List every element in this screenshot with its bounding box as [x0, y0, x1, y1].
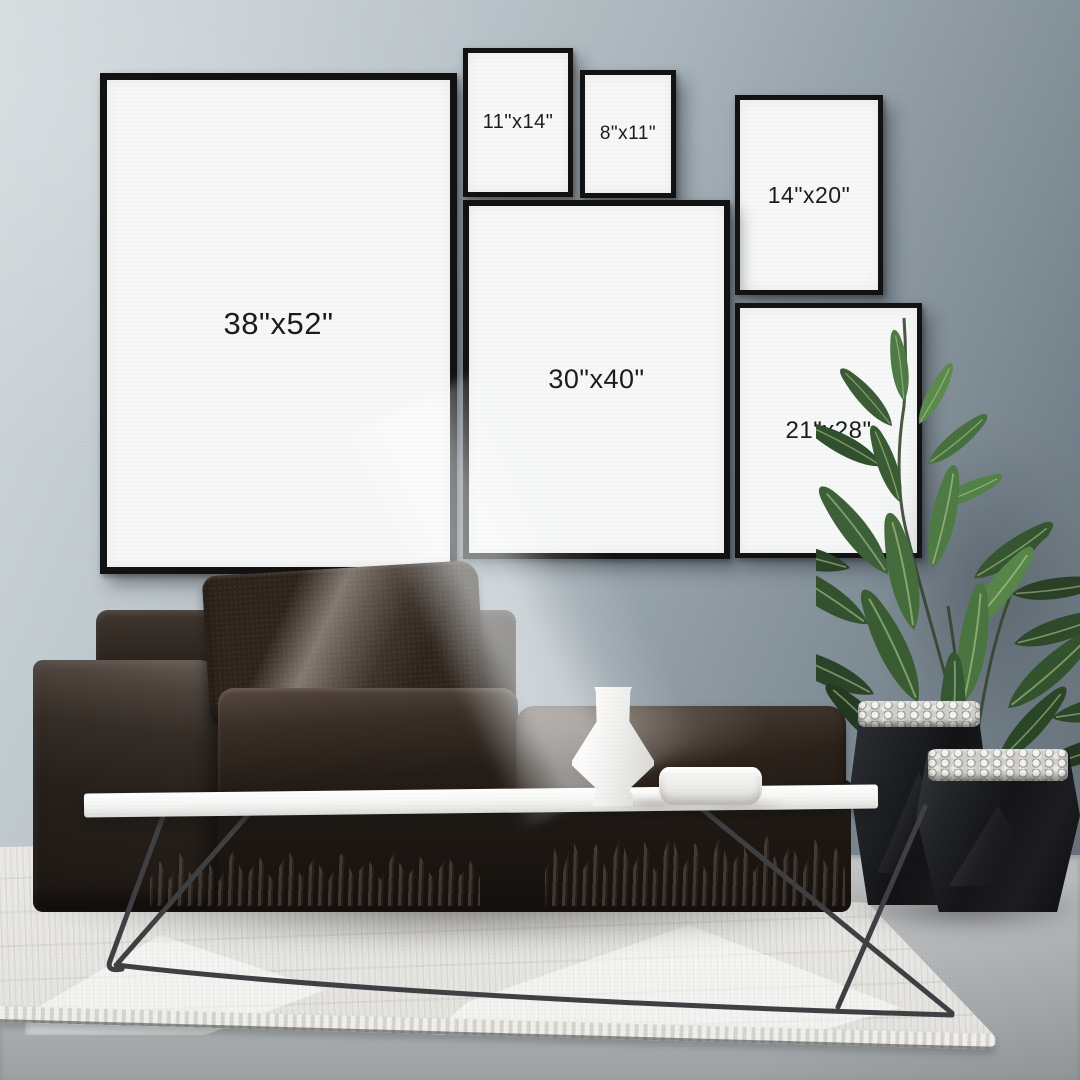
frame-11x14: 11"x14" [463, 48, 573, 197]
frame-size-label: 30"x40" [548, 364, 644, 395]
frame-8x11: 8"x11" [580, 70, 676, 198]
white-bowl [659, 767, 762, 805]
frame-size-label: 38"x52" [224, 306, 334, 342]
planter-pebbles [858, 701, 980, 727]
frame-30x40: 30"x40" [463, 200, 730, 559]
coffee-table-legs [80, 795, 980, 1035]
planter-pebbles [928, 749, 1068, 781]
sofa-seat-cushion-left [218, 688, 518, 803]
frame-size-label: 8"x11" [600, 123, 656, 145]
frame-size-label: 14"x20" [768, 182, 851, 209]
frame-14x20: 14"x20" [735, 95, 883, 295]
room-scene: 38"x52" 11"x14" 8"x11" 14"x20" 30"x40" 2… [0, 0, 1080, 1080]
frame-38x52: 38"x52" [100, 73, 457, 574]
frame-size-label: 11"x14" [483, 111, 554, 134]
